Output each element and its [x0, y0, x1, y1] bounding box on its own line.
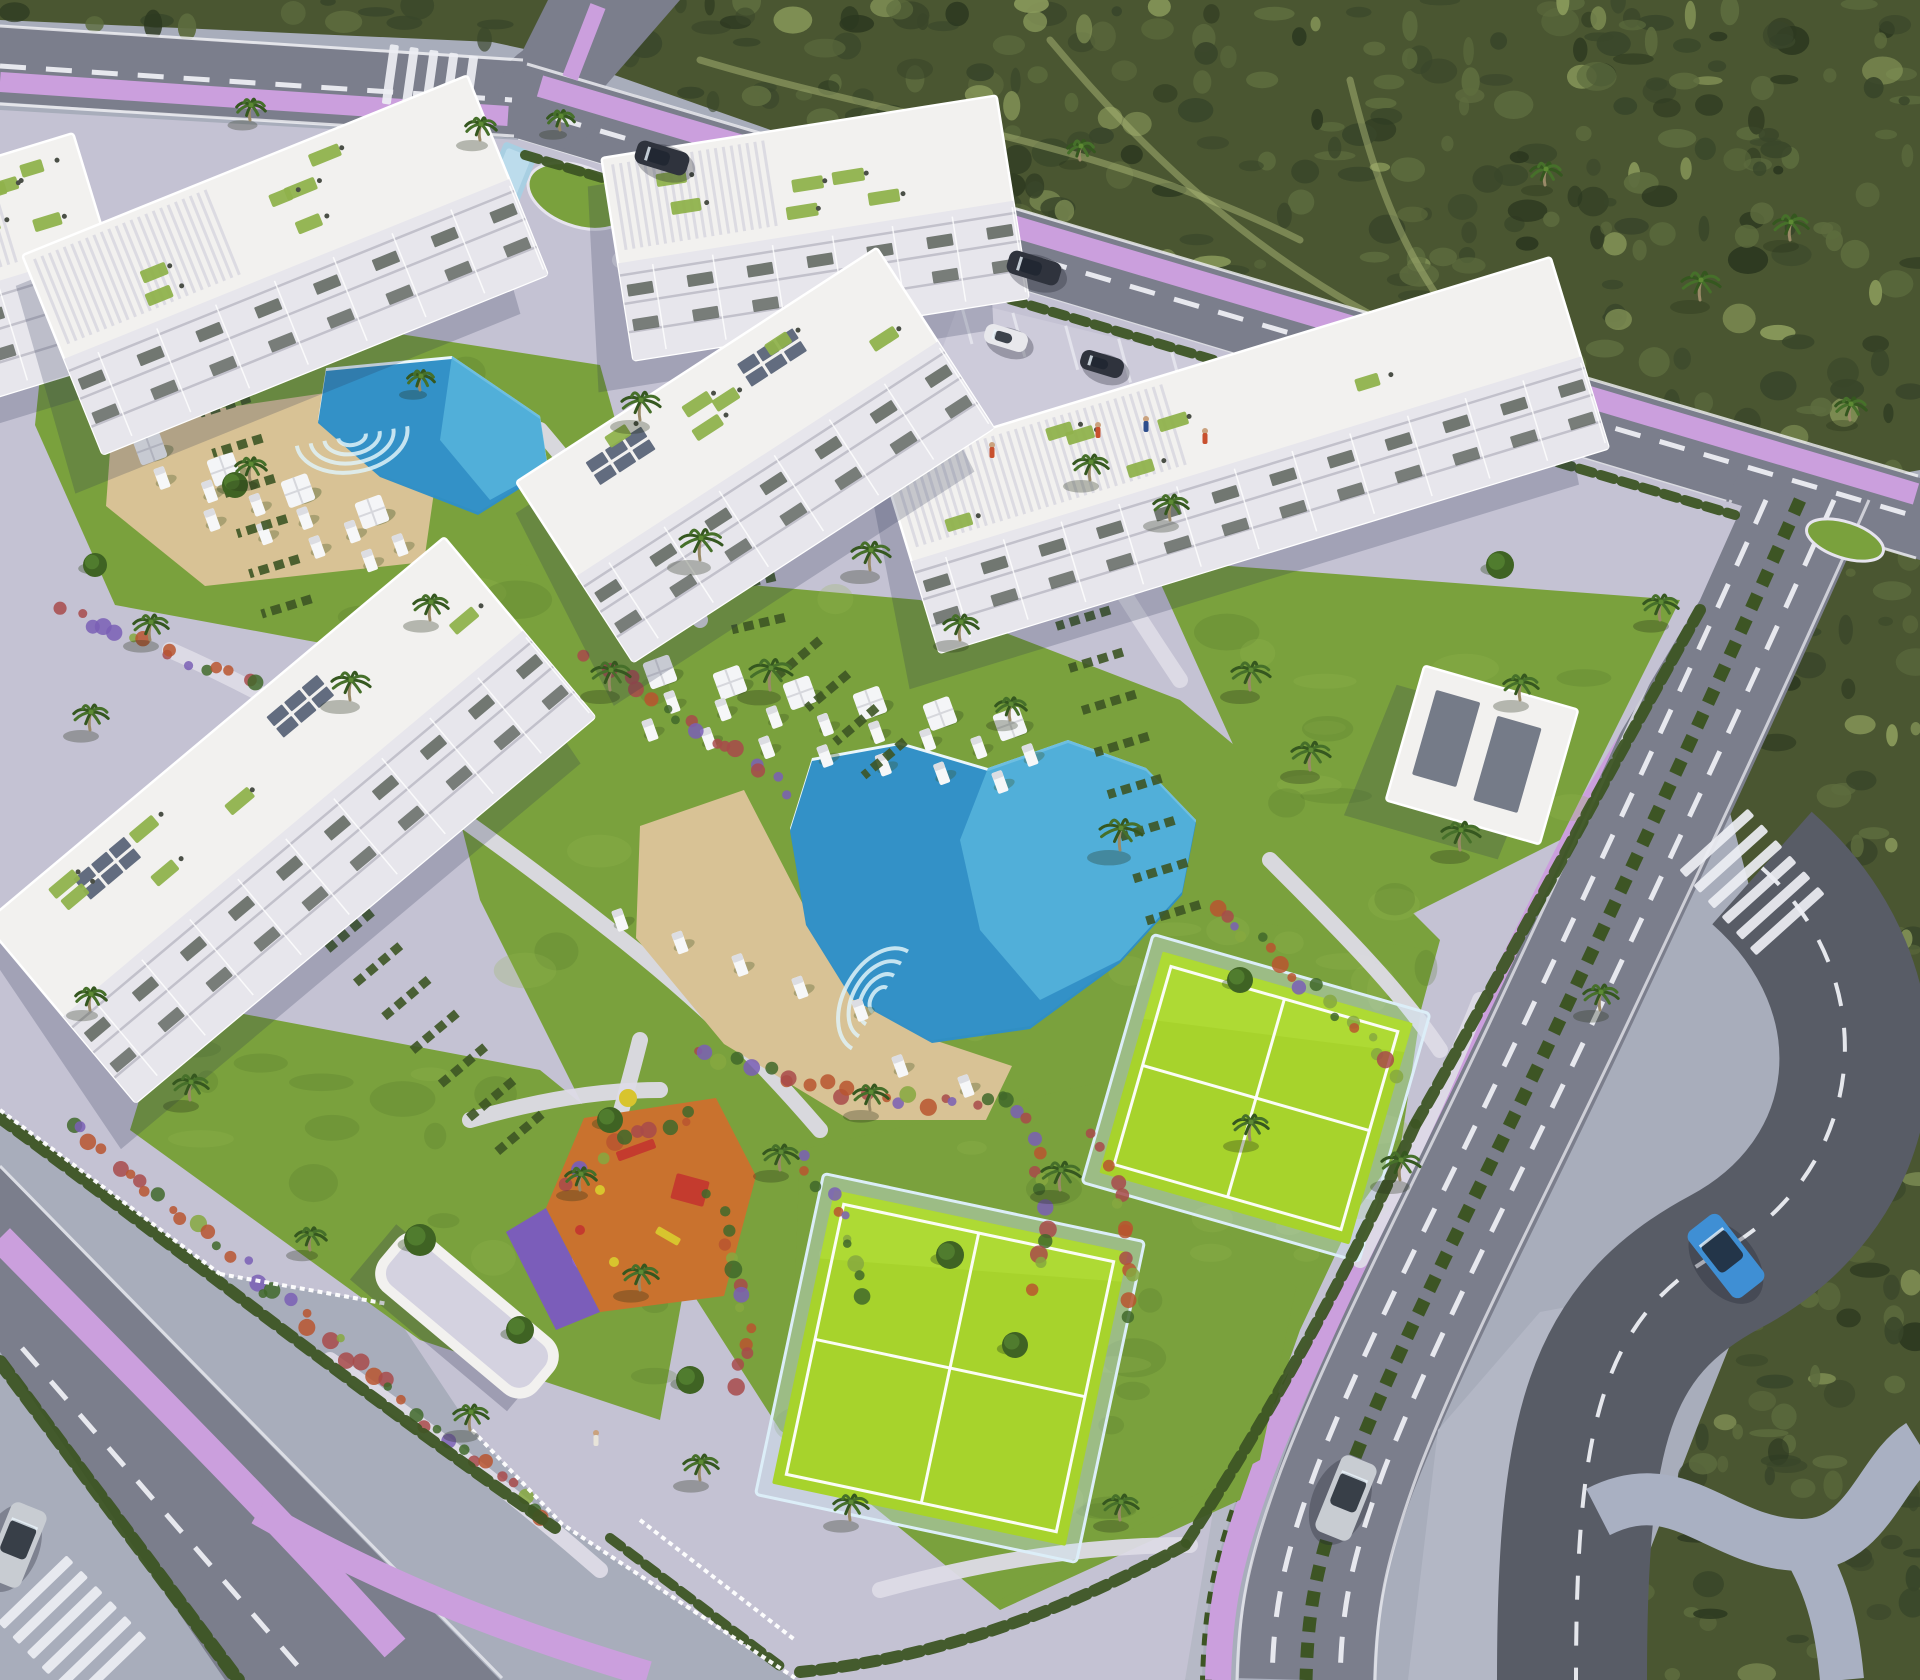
residential-complex-rendering	[0, 0, 1920, 1680]
aerial-site-render	[0, 0, 1920, 1680]
padel-court	[755, 1173, 1144, 1562]
